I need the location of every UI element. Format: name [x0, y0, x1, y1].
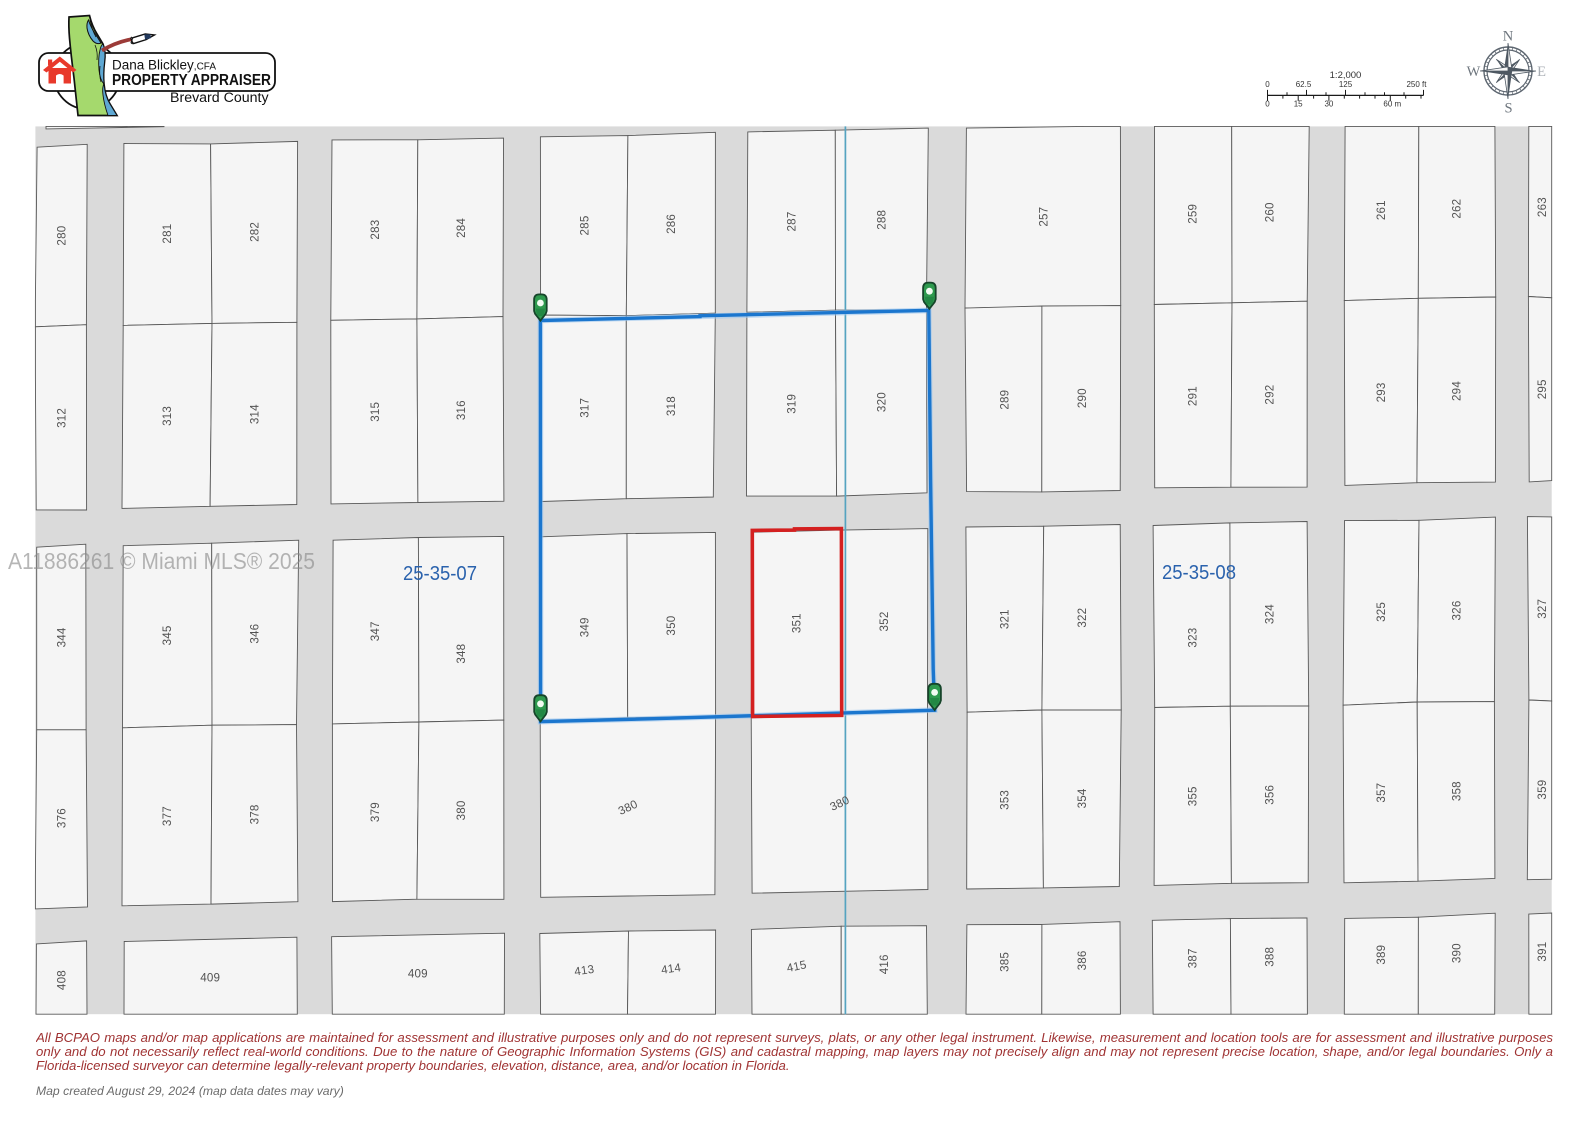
svg-text:378: 378: [248, 804, 261, 824]
svg-text:0: 0: [1265, 80, 1270, 89]
svg-text:30: 30: [1324, 100, 1333, 109]
svg-text:125: 125: [1339, 80, 1353, 89]
svg-text:257: 257: [1037, 207, 1050, 227]
svg-text:353: 353: [999, 790, 1012, 810]
svg-text:280: 280: [56, 226, 69, 246]
svg-text:W: W: [1467, 64, 1481, 80]
svg-text:Brevard County: Brevard County: [170, 90, 269, 106]
svg-text:62.5: 62.5: [1296, 80, 1312, 89]
svg-text:356: 356: [1264, 785, 1277, 805]
svg-text:285: 285: [578, 216, 591, 236]
svg-text:282: 282: [248, 222, 261, 242]
svg-text:409: 409: [408, 967, 428, 980]
svg-text:347: 347: [369, 621, 382, 641]
svg-text:389: 389: [1375, 945, 1388, 965]
svg-text:391: 391: [1536, 942, 1549, 962]
svg-text:60 m: 60 m: [1383, 100, 1401, 109]
svg-text:294: 294: [1451, 381, 1464, 401]
svg-text:286: 286: [665, 214, 678, 234]
svg-text:321: 321: [999, 609, 1012, 629]
svg-text:312: 312: [56, 408, 69, 428]
svg-text:281: 281: [161, 224, 174, 244]
svg-text:388: 388: [1264, 947, 1277, 967]
svg-text:386: 386: [1076, 950, 1089, 970]
svg-text:414: 414: [660, 961, 682, 977]
svg-text:344: 344: [56, 627, 69, 647]
svg-text:25-35-08: 25-35-08: [1162, 562, 1236, 584]
svg-text:313: 313: [161, 406, 174, 426]
svg-text:261: 261: [1375, 200, 1388, 220]
svg-text:E: E: [1537, 64, 1546, 80]
svg-text:408: 408: [56, 970, 69, 990]
svg-text:327: 327: [1536, 599, 1549, 619]
svg-text:351: 351: [791, 613, 804, 633]
svg-text:S: S: [1504, 101, 1512, 117]
svg-text:376: 376: [56, 808, 69, 828]
svg-text:359: 359: [1536, 780, 1549, 800]
svg-text:387: 387: [1186, 948, 1199, 968]
svg-text:283: 283: [369, 220, 382, 240]
svg-text:380: 380: [455, 800, 468, 820]
svg-text:317: 317: [578, 398, 591, 418]
svg-text:1:2,000: 1:2,000: [1330, 70, 1362, 81]
svg-text:263: 263: [1536, 197, 1549, 217]
svg-text:325: 325: [1375, 602, 1388, 622]
svg-text:250 ft: 250 ft: [1406, 80, 1427, 89]
svg-text:358: 358: [1451, 781, 1464, 801]
svg-text:292: 292: [1264, 385, 1277, 405]
svg-text:326: 326: [1451, 601, 1464, 621]
svg-text:25-35-07: 25-35-07: [403, 563, 477, 585]
svg-text:N: N: [1503, 29, 1514, 45]
svg-text:355: 355: [1186, 786, 1199, 806]
svg-text:346: 346: [248, 624, 261, 644]
svg-text:290: 290: [1076, 388, 1089, 408]
svg-text:409: 409: [200, 971, 220, 984]
svg-text:PROPERTY APPRAISER: PROPERTY APPRAISER: [112, 72, 271, 89]
svg-text:316: 316: [455, 400, 468, 420]
svg-text:15: 15: [1294, 100, 1303, 109]
svg-text:284: 284: [455, 218, 468, 238]
svg-text:0: 0: [1265, 100, 1270, 109]
svg-text:320: 320: [876, 392, 889, 412]
svg-text:318: 318: [665, 396, 678, 416]
svg-text:322: 322: [1076, 608, 1089, 628]
svg-text:259: 259: [1186, 204, 1199, 224]
svg-text:260: 260: [1264, 202, 1277, 222]
svg-text:350: 350: [665, 616, 678, 636]
svg-text:262: 262: [1451, 199, 1464, 219]
svg-text:385: 385: [999, 952, 1012, 972]
svg-text:315: 315: [369, 402, 382, 422]
svg-text:A11886261 © Miami MLS® 2025: A11886261 © Miami MLS® 2025: [8, 548, 315, 574]
svg-text:349: 349: [578, 617, 591, 637]
svg-text:288: 288: [876, 210, 889, 230]
svg-text:324: 324: [1264, 604, 1277, 624]
svg-text:377: 377: [161, 806, 174, 826]
svg-text:314: 314: [248, 404, 261, 424]
svg-text:319: 319: [786, 394, 799, 414]
svg-text:348: 348: [455, 644, 468, 664]
svg-text:390: 390: [1451, 943, 1464, 963]
svg-text:345: 345: [161, 625, 174, 645]
svg-text:289: 289: [999, 390, 1012, 410]
svg-text:291: 291: [1186, 386, 1199, 406]
svg-text:293: 293: [1375, 382, 1388, 402]
svg-text:287: 287: [786, 212, 799, 232]
svg-text:354: 354: [1076, 788, 1089, 808]
svg-text:323: 323: [1186, 628, 1199, 648]
svg-text:379: 379: [369, 802, 382, 822]
svg-text:416: 416: [878, 954, 891, 974]
svg-text:352: 352: [878, 612, 891, 632]
svg-text:295: 295: [1536, 379, 1549, 399]
svg-text:413: 413: [573, 963, 595, 979]
svg-text:357: 357: [1375, 783, 1388, 803]
